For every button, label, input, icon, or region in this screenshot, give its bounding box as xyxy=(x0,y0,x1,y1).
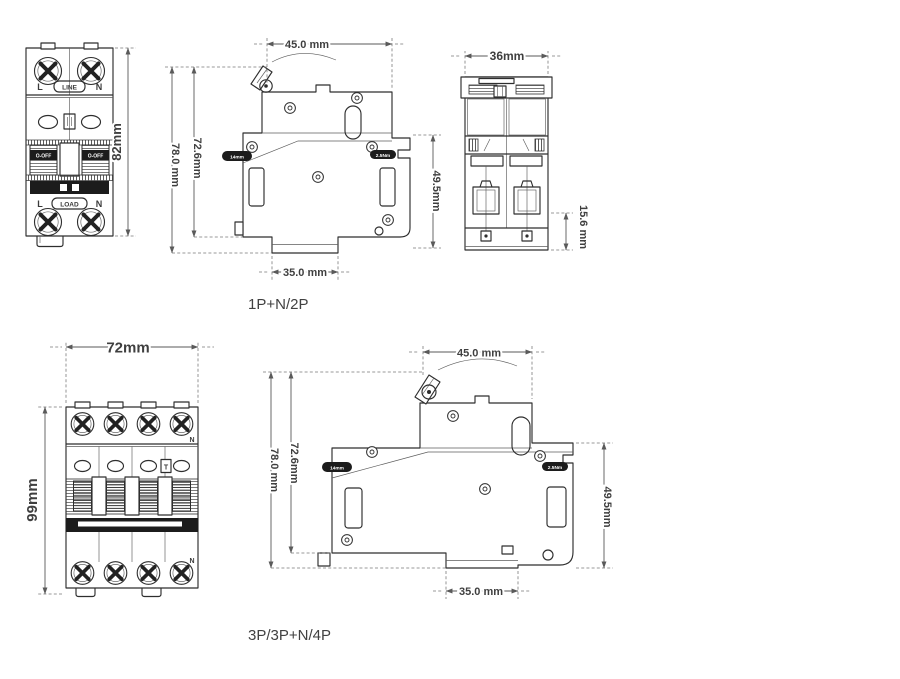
toggle-off-label-left: O-OFF xyxy=(36,154,52,160)
dim-h1-2p: 72.6mm xyxy=(191,138,203,179)
din-clip xyxy=(37,236,63,247)
terminal-label-n-bottom: N xyxy=(96,199,103,209)
terminal-label-l-top: L xyxy=(37,82,43,92)
toggle-interlock xyxy=(92,477,106,515)
screw-terminal-icon xyxy=(78,209,105,236)
toggle-lever xyxy=(415,375,440,404)
case-rivet-icon xyxy=(285,103,296,114)
rear-view-2p: 36mm 15.6 mm xyxy=(451,49,589,250)
dim-depth-top-2p: 45.0 mm xyxy=(285,39,329,51)
drawing-canvas: L N LINE O-OFF O-OFF L N LOAD xyxy=(0,0,900,679)
din-clip-end xyxy=(318,553,330,566)
screw-terminal-icon xyxy=(71,413,94,436)
dim-width-rear-2p: 36mm xyxy=(490,49,525,63)
toggle-off-label-right: O-OFF xyxy=(88,154,104,160)
line-side-label: LINE xyxy=(62,85,77,92)
case-rivet-icon xyxy=(480,484,491,495)
terminal-tab xyxy=(41,43,55,49)
load-side-label: LOAD xyxy=(60,202,79,209)
screw-terminal-icon xyxy=(104,562,127,585)
neutral-label-top: N xyxy=(189,437,194,444)
front-view-2p: L N LINE O-OFF O-OFF L N LOAD xyxy=(26,43,136,247)
strip-length-label: 14mm xyxy=(330,466,344,472)
terminal-tab xyxy=(84,43,98,49)
label-window xyxy=(30,181,109,194)
case-rivet-icon xyxy=(535,451,546,462)
lever-travel-arc xyxy=(272,53,336,62)
dim-height-4p: 99mm xyxy=(24,478,41,521)
screw-terminal-icon xyxy=(78,58,105,85)
toggle-interlock xyxy=(125,477,139,515)
dim-width-4p: 72mm xyxy=(106,340,149,357)
test-button-label: T xyxy=(164,465,169,472)
terminal-label-n-top: N xyxy=(96,82,103,92)
case-rivet-icon xyxy=(247,142,258,153)
screw-terminal-icon xyxy=(170,413,193,436)
case-rivet-icon xyxy=(383,215,394,226)
neutral-label-bottom: N xyxy=(189,558,194,565)
toggle-lever xyxy=(251,66,272,90)
case-rivet-icon xyxy=(448,411,459,422)
dim-h3-2p: 49.5mm xyxy=(430,171,442,212)
caption-1p-n-2p: 1P+N/2P xyxy=(248,296,308,313)
dim-h2-2p: 78.0 mm xyxy=(169,143,181,187)
toggle-handle xyxy=(74,481,92,511)
terminal-label-l-bottom: L xyxy=(37,199,43,209)
case-rivet-icon xyxy=(313,172,324,183)
screw-terminal-icon xyxy=(104,413,127,436)
din-clip-end xyxy=(235,222,243,235)
rear-clip-tab xyxy=(494,86,506,97)
torque-label: 2.5Nm xyxy=(548,465,562,471)
side-view-2p: 14mm 2.5Nm 45.0 mm 72.6mm 78.0 mm 49.5mm… xyxy=(165,38,442,280)
dim-height-2p: 82mm xyxy=(109,123,124,161)
dim-rail-4p: 35.0 mm xyxy=(459,586,503,598)
screw-terminal-icon xyxy=(170,562,193,585)
case-rivet-icon xyxy=(367,447,378,458)
din-clip xyxy=(142,588,161,597)
din-clip xyxy=(76,588,95,597)
dim-h1-4p: 72.6mm xyxy=(288,443,300,484)
toggle-interlock xyxy=(60,143,79,176)
lever-travel-arc xyxy=(438,359,517,370)
toggle-interlock xyxy=(158,477,172,515)
screw-terminal-icon xyxy=(137,562,160,585)
dim-depth-top-4p: 45.0 mm xyxy=(457,348,501,360)
dim-rail-2p: 35.0 mm xyxy=(283,267,327,279)
case-rivet-icon xyxy=(352,93,363,104)
dim-h2-4p: 78.0 mm xyxy=(268,448,280,492)
torque-label: 2.5Nm xyxy=(376,153,390,159)
dim-h3-4p: 49.5mm xyxy=(601,487,613,528)
screw-terminal-icon xyxy=(71,562,94,585)
screw-terminal-icon xyxy=(35,209,62,236)
screw-terminal-icon xyxy=(137,413,160,436)
dim-depth-rear-2p: 15.6 mm xyxy=(577,205,589,249)
toggle-handle xyxy=(173,481,191,511)
front-view-4p: N T N 72mm xyxy=(24,340,214,597)
side-view-4p: 14mm 2.5Nm 45.0 mm 72.6mm 78.0 mm 49.5mm… xyxy=(263,346,613,599)
case-rivet-icon xyxy=(342,535,353,546)
toggle-handle xyxy=(140,481,158,511)
toggle-handle xyxy=(107,481,125,511)
technical-drawing: L N LINE O-OFF O-OFF L N LOAD xyxy=(0,0,900,679)
caption-3p-4p: 3P/3P+N/4P xyxy=(248,627,331,644)
strip-length-label: 14mm xyxy=(230,155,244,161)
screw-terminal-icon xyxy=(35,58,62,85)
